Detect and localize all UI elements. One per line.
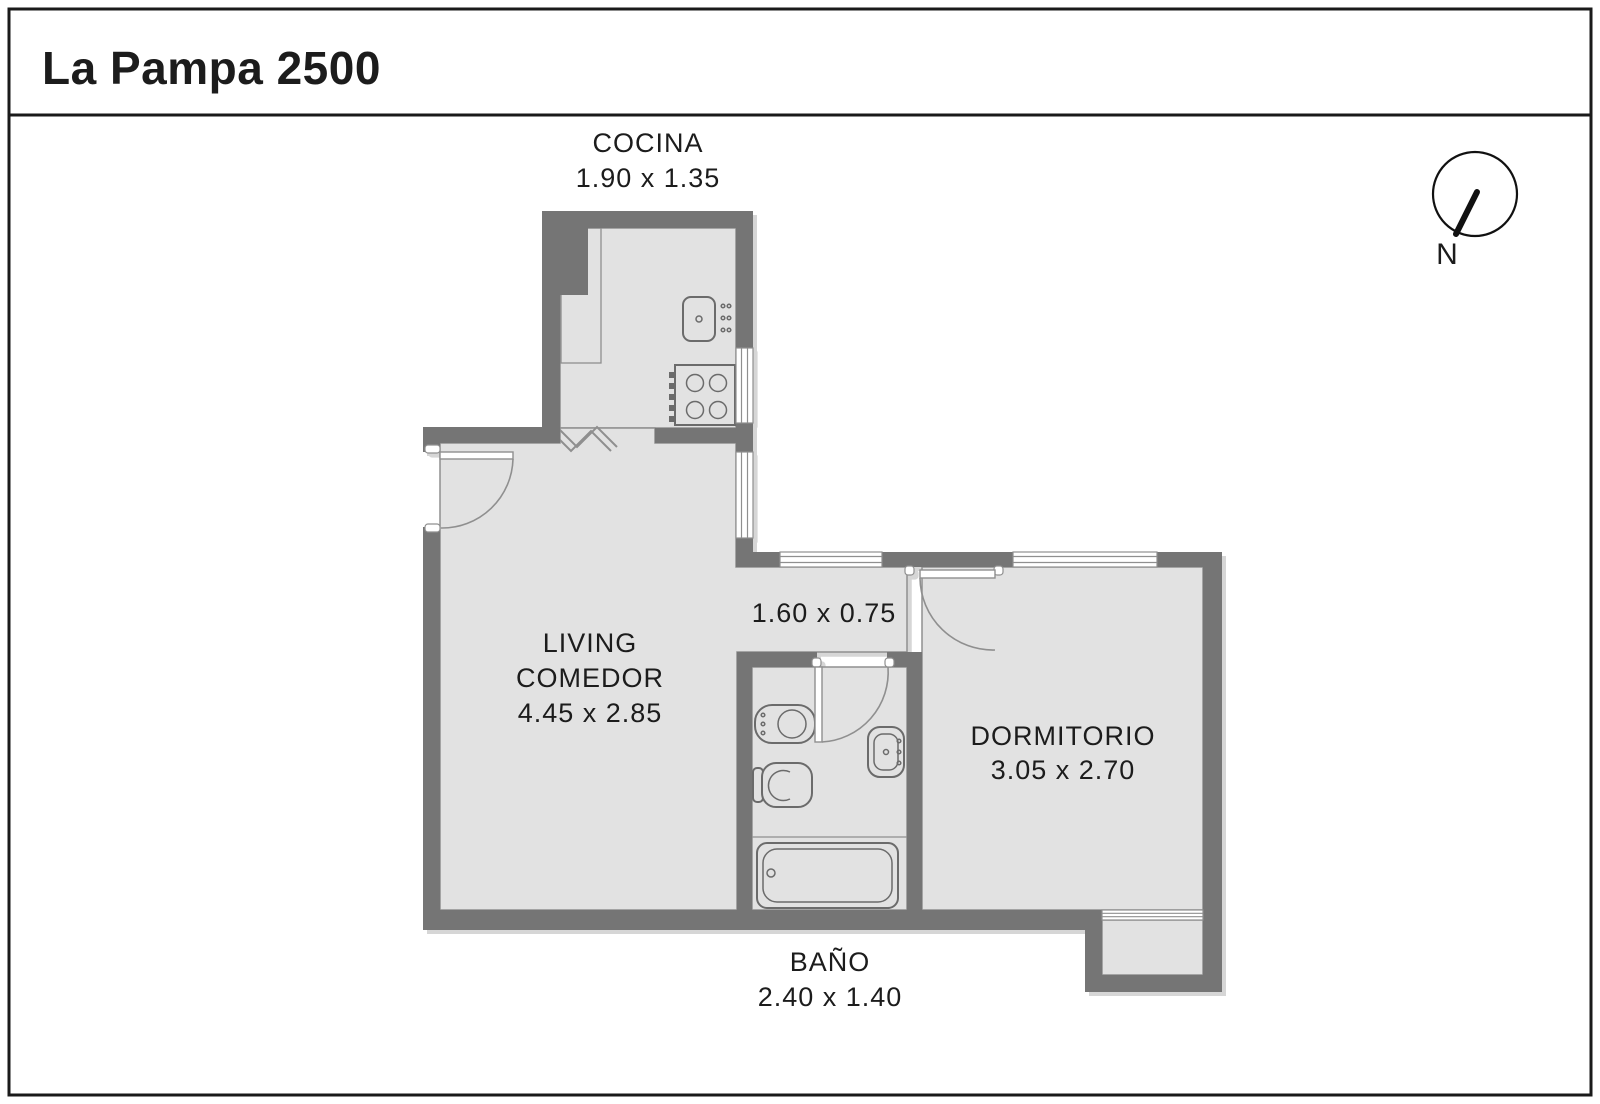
balcony-threshold xyxy=(1102,910,1203,920)
bathroom-sink-icon xyxy=(868,727,904,777)
floorplan-page: La Pampa 2500 xyxy=(0,0,1600,1104)
north-label: N xyxy=(1436,238,1458,271)
kitchen-dims: 1.90 x 1.35 xyxy=(576,163,721,193)
living-top-window xyxy=(780,552,882,567)
kitchen-window xyxy=(736,348,753,423)
balcony-floor xyxy=(1102,920,1203,975)
bathtub-icon xyxy=(757,843,898,908)
bathroom-label: BAÑO xyxy=(790,946,871,977)
bedroom-label: DORMITORIO xyxy=(971,721,1156,751)
floorplan-canvas: La Pampa 2500 xyxy=(0,0,1600,1104)
bedroom-window xyxy=(1013,552,1157,567)
kitchen-label: COCINA xyxy=(592,128,703,158)
compass: N xyxy=(1433,152,1517,271)
hall-dims: 1.60 x 0.75 xyxy=(752,598,897,628)
stove-icon xyxy=(669,365,735,425)
toilet-icon xyxy=(753,763,812,807)
north-needle-icon xyxy=(1456,192,1477,234)
bathroom-dims: 2.40 x 1.40 xyxy=(758,982,903,1012)
page-title: La Pampa 2500 xyxy=(42,42,381,94)
living-label-2: COMEDOR xyxy=(516,663,664,693)
bidet-icon xyxy=(755,705,815,743)
living-dims: 4.45 x 2.85 xyxy=(518,698,663,728)
bedroom-dims: 3.05 x 2.70 xyxy=(991,755,1136,785)
living-side-window xyxy=(736,452,753,538)
living-label-1: LIVING xyxy=(543,628,638,658)
